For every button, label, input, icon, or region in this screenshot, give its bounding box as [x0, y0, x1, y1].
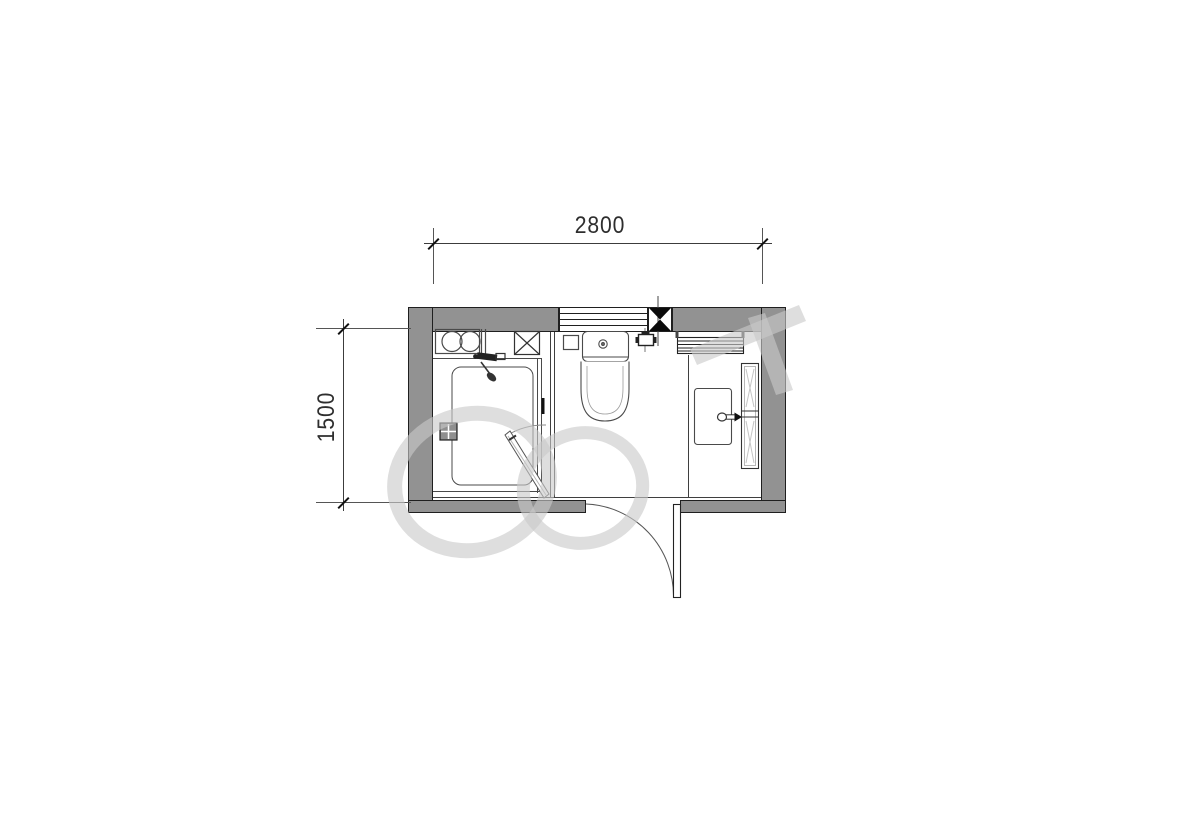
side-cabinet-icon	[742, 364, 759, 469]
double-basin-counter	[436, 329, 486, 356]
dim-extension-line	[762, 228, 763, 284]
shower-door	[505, 425, 549, 498]
door-leaf	[674, 505, 681, 598]
shower-tray	[452, 367, 533, 485]
dim-extension-line	[433, 228, 434, 284]
wall-access-box-icon	[564, 336, 579, 350]
floor-drain-icon	[440, 423, 457, 440]
entry-door	[586, 504, 681, 598]
inlet-valve-icon	[636, 328, 657, 352]
dim-label-width: 2800	[560, 212, 639, 240]
shaft-x-box-icon	[515, 332, 540, 355]
toilet-icon	[581, 332, 629, 422]
towel-radiator-icon	[676, 331, 745, 354]
plan-linework	[0, 0, 1198, 831]
dim-line-top	[424, 243, 772, 244]
dim-extension-line	[316, 328, 411, 329]
dim-extension-line	[316, 502, 411, 503]
floorplan-canvas: 2800 1500	[0, 0, 1198, 831]
shower-mixer-icon	[473, 352, 505, 383]
dim-line-left	[343, 319, 344, 511]
dim-label-height: 1500	[313, 377, 341, 456]
